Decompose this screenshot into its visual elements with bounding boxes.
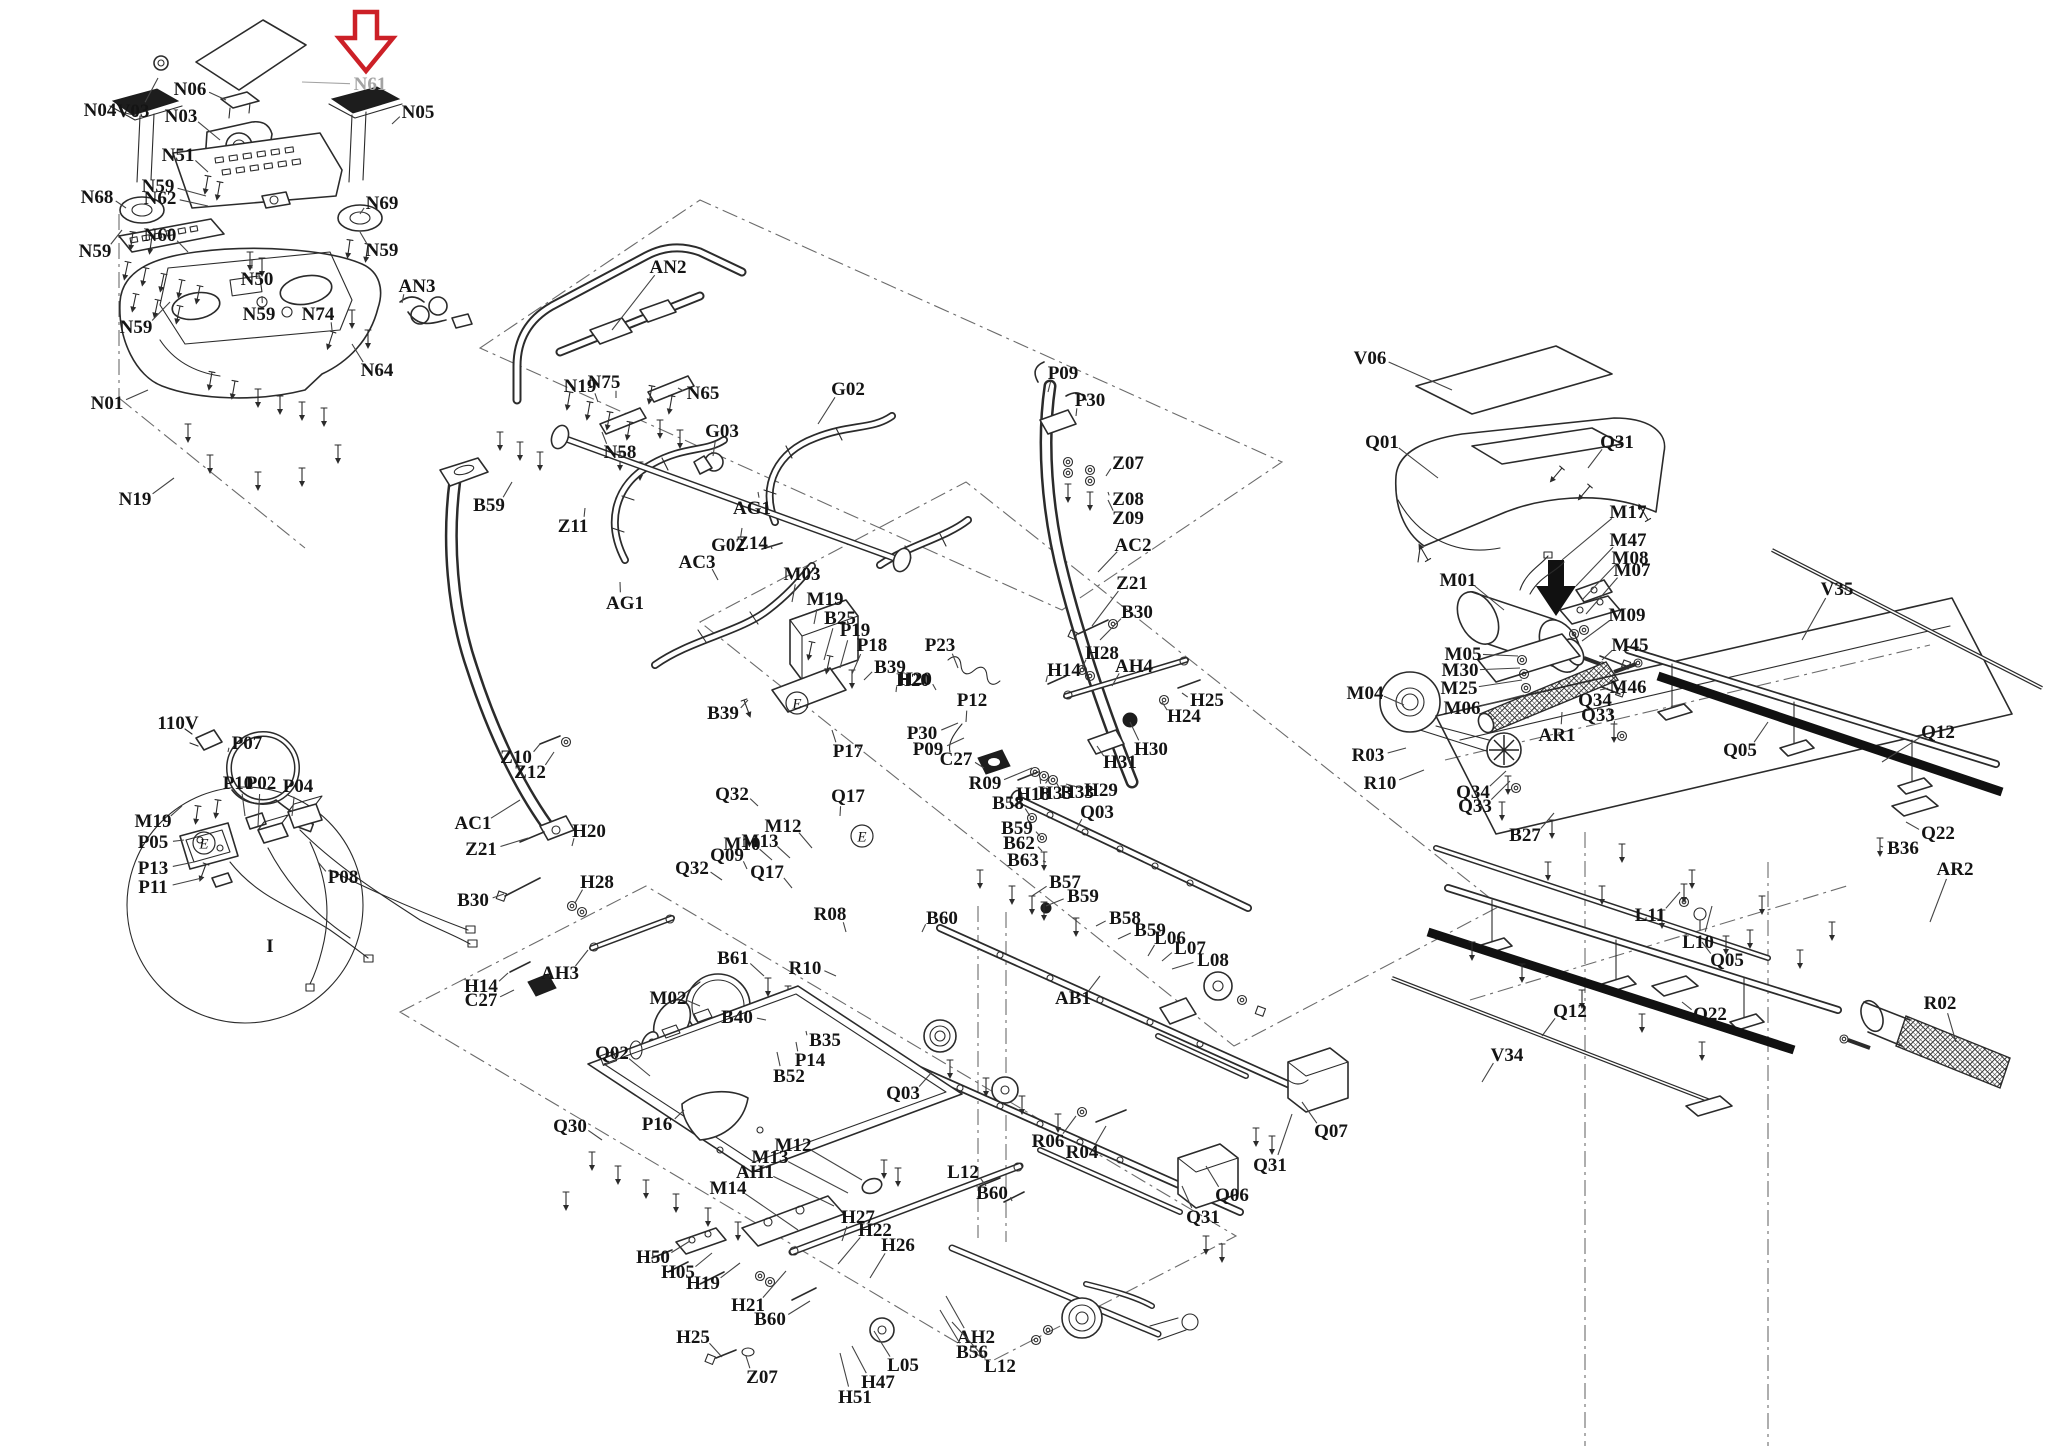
leader-line <box>1182 693 1188 697</box>
part-label-R10-78: R10 <box>789 958 822 979</box>
console-assembly-art <box>110 20 472 491</box>
part-label-N19-21: N19 <box>119 489 152 510</box>
part-label-G03-39: G03 <box>705 421 739 442</box>
leader-line <box>750 964 764 976</box>
part-label-M01-161: M01 <box>1440 570 1477 591</box>
part-label-Q31-153: Q31 <box>1186 1207 1220 1228</box>
part-label-M06-167: M06 <box>1444 698 1481 719</box>
leader-line <box>302 82 350 84</box>
part-label-Q22-181: Q22 <box>1921 823 1955 844</box>
leader-line <box>824 971 836 976</box>
part-label-N50-10: N50 <box>241 269 274 290</box>
part-label-B30-63: B30 <box>457 890 489 911</box>
part-label-N65-36: N65 <box>687 383 720 404</box>
leader-line <box>1562 518 1612 560</box>
leader-line <box>1802 598 1826 640</box>
console-wire-pigtail-part <box>400 297 472 328</box>
part-label-M19-48: M19 <box>807 589 844 610</box>
part-label-R04-149: R04 <box>1066 1142 1099 1163</box>
part-label-L08-124: L08 <box>1197 950 1229 971</box>
leader-line <box>946 1296 964 1328</box>
part-label-V03-1: V03 <box>117 101 150 122</box>
part-label-AC2-94: AC2 <box>1115 535 1152 556</box>
part-label-H28-97: H28 <box>1085 643 1119 664</box>
leader-line <box>750 799 758 806</box>
part-label-B60-147: B60 <box>976 1183 1008 1204</box>
part-label-L12-145: L12 <box>984 1356 1016 1377</box>
leader-line <box>941 723 958 730</box>
circled-mark-E-0: E <box>198 837 208 853</box>
part-label-M09-162: M09 <box>1609 605 1646 626</box>
leader-line <box>721 1263 740 1278</box>
part-label-C27-67: C27 <box>465 990 498 1011</box>
part-label-AH4-99: AH4 <box>1115 656 1154 677</box>
leader-line <box>1906 822 1919 829</box>
part-label-P02-25: P02 <box>246 773 277 794</box>
part-label-P13-29: P13 <box>138 858 169 879</box>
part-label-Q32-70: Q32 <box>675 858 709 879</box>
leader-line <box>777 846 790 858</box>
leader-line <box>743 861 747 869</box>
part-label-AH3-65: AH3 <box>541 963 579 984</box>
part-label-AC1-60: AC1 <box>455 813 492 834</box>
leader-line <box>852 1346 866 1373</box>
part-label-N58-37: N58 <box>604 442 637 463</box>
part-label-H25-138: H25 <box>676 1327 710 1348</box>
part-label-110V-22: 110V <box>157 713 198 734</box>
leader-line <box>933 684 936 690</box>
part-label-Z11-42: Z11 <box>558 516 589 537</box>
part-label-AC3-45: AC3 <box>679 552 716 573</box>
part-label-H20-105: H20 <box>898 669 932 690</box>
part-label-N59-19: N59 <box>120 317 153 338</box>
part-label-V06-154: V06 <box>1354 348 1387 369</box>
part-label-M46-168: M46 <box>1610 677 1647 698</box>
leader-line <box>499 973 508 981</box>
small-cover-part <box>221 92 259 108</box>
leader-line <box>1930 879 1946 922</box>
part-label-B61-79: B61 <box>717 948 749 969</box>
part-label-Q02-85: Q02 <box>595 1043 629 1064</box>
part-label-B59-41: B59 <box>473 495 505 516</box>
leader-line <box>788 1301 810 1314</box>
leader-line <box>392 117 400 124</box>
part-label-M25-166: M25 <box>1441 678 1478 699</box>
leader-line <box>171 806 182 816</box>
part-label-P30-90: P30 <box>1075 390 1106 411</box>
part-label-Q22-187: Q22 <box>1693 1004 1727 1025</box>
part-label-L12-146: L12 <box>947 1162 979 1183</box>
exploded-parts-diagram-page: N04V03N06N03N51N59N62N68N59N60N50N69N59N… <box>0 0 2048 1448</box>
part-label-N04-0: N04 <box>84 100 117 121</box>
part-label-Q05-180: Q05 <box>1723 740 1757 761</box>
diagram-canvas: N04V03N06N03N51N59N62N68N59N60N50N69N59N… <box>0 0 2048 1448</box>
part-label-P08-31: P08 <box>328 867 359 888</box>
part-label-B63-116: B63 <box>1007 850 1039 871</box>
part-label-Z09-93: Z09 <box>1112 508 1144 529</box>
part-label-B40-81: B40 <box>721 1007 753 1028</box>
part-label-Q33-172: Q33 <box>1581 705 1615 726</box>
main-frame-art <box>440 248 1348 1365</box>
part-label-B60-77: B60 <box>926 908 958 929</box>
part-label-L11-184: L11 <box>1635 905 1666 926</box>
part-label-H19-135: H19 <box>686 1273 720 1294</box>
part-label-N05-13: N05 <box>402 102 435 123</box>
leader-line <box>126 390 148 400</box>
part-label-B35-82: B35 <box>809 1030 841 1051</box>
part-label-N51-4: N51 <box>162 145 195 166</box>
part-label-AN3-15: AN3 <box>399 276 436 297</box>
part-label-V35-178: V35 <box>1821 579 1854 600</box>
leader-line <box>947 738 964 746</box>
part-label-M12-74: M12 <box>765 816 802 837</box>
part-label-H30-102: H30 <box>1134 739 1168 760</box>
speaker-grommet-part <box>154 56 168 70</box>
part-label-M03-47: M03 <box>784 564 821 585</box>
leader-line <box>1278 1114 1292 1155</box>
part-label-AR1-170: AR1 <box>1539 725 1576 746</box>
part-label-Z21-95: Z21 <box>1116 573 1148 594</box>
part-label-Q03-88: Q03 <box>886 1083 920 1104</box>
part-label-Q05-186: Q05 <box>1710 950 1744 971</box>
part-label-Z08-92: Z08 <box>1112 489 1144 510</box>
leader-line <box>1388 748 1406 753</box>
leader-line <box>864 672 872 680</box>
part-label-N03-3: N03 <box>165 106 198 127</box>
part-label-AR2-183: AR2 <box>1937 859 1974 880</box>
part-label-Q31-156: Q31 <box>1600 432 1634 453</box>
part-label-R02-188: R02 <box>1924 993 1957 1014</box>
power-wiring-art <box>127 729 477 1023</box>
part-label-N68-7: N68 <box>81 187 114 208</box>
part-label-R08-76: R08 <box>814 904 847 925</box>
part-label-Z07-91: Z07 <box>1112 453 1144 474</box>
part-label-H51-142: H51 <box>838 1387 872 1408</box>
part-label-H26-132: H26 <box>881 1235 915 1256</box>
part-label-P05-28: P05 <box>138 832 169 853</box>
leader-line <box>1490 771 1506 786</box>
leader-line <box>922 924 926 932</box>
part-label-N62-6: N62 <box>144 188 177 209</box>
leader-line <box>588 1130 602 1140</box>
leader-line <box>811 1150 862 1180</box>
leader-line <box>1063 1116 1076 1134</box>
leader-line <box>1162 953 1172 961</box>
overlay-sheet-part <box>196 20 306 90</box>
part-label-H31-103: H31 <box>1103 752 1137 773</box>
circled-mark-E-1: E <box>791 697 801 713</box>
leader-line <box>1666 892 1680 908</box>
part-label-H24-101: H24 <box>1167 706 1201 727</box>
roller-wheel-part <box>1204 972 1232 1000</box>
part-label-Q06-152: Q06 <box>1215 1185 1249 1206</box>
part-label-Q03-117: Q03 <box>1080 802 1114 823</box>
part-label-M02-80: M02 <box>650 988 687 1009</box>
leader-line <box>209 92 226 100</box>
leader-line <box>870 1253 885 1278</box>
part-label-H28-64: H28 <box>580 872 614 893</box>
leader-line <box>1025 809 1030 816</box>
leader-line <box>491 800 520 818</box>
part-label-Q01-155: Q01 <box>1365 432 1399 453</box>
leader-line <box>1108 492 1109 495</box>
part-label-Z07-139: Z07 <box>746 1367 778 1388</box>
part-label-P04-26: P04 <box>283 776 314 797</box>
part-label-B30-96: B30 <box>1121 602 1153 623</box>
leader-line <box>1004 768 1032 780</box>
power-plug-part <box>196 730 222 750</box>
part-label-C27-107: C27 <box>940 749 973 770</box>
part-label-R06-148: R06 <box>1032 1131 1065 1152</box>
leader-line <box>1172 962 1193 969</box>
part-label-N64-17: N64 <box>361 360 394 381</box>
part-label-P23-104: P23 <box>925 635 956 656</box>
leader-line <box>1705 906 1712 932</box>
part-label-N59-8: N59 <box>79 241 112 262</box>
part-label-Z14-44: Z14 <box>736 533 768 554</box>
part-label-N01-20: N01 <box>91 393 124 414</box>
part-label-M04-169: M04 <box>1347 683 1384 704</box>
leader-line <box>1576 547 1613 586</box>
part-label-I-32: I <box>266 936 273 957</box>
part-label-P09-89: P09 <box>1048 363 1079 384</box>
part-label-P16-86: P16 <box>642 1114 673 1135</box>
part-label-M19-27: M19 <box>135 811 172 832</box>
leader-line <box>534 744 540 752</box>
circled-mark-E-2: E <box>856 830 866 846</box>
part-label-M14-129: M14 <box>710 1178 747 1199</box>
leader-line <box>1096 921 1106 926</box>
part-label-B56-144: B56 <box>956 1342 988 1363</box>
part-label-Q17-75: Q17 <box>750 862 784 883</box>
leader-line <box>153 478 174 494</box>
part-label-R10-174: R10 <box>1364 773 1397 794</box>
part-label-B36-182: B36 <box>1887 838 1919 859</box>
part-label-P11-30: P11 <box>138 877 168 898</box>
part-label-N59-18: N59 <box>243 304 276 325</box>
part-label-P18-51: P18 <box>857 635 888 656</box>
part-label-B39-54: B39 <box>707 703 739 724</box>
part-label-M45-163: M45 <box>1612 635 1649 656</box>
part-label-Z12-56: Z12 <box>514 762 546 783</box>
leader-line <box>1682 1002 1692 1010</box>
leader-line <box>1561 712 1562 724</box>
part-label-B27-177: B27 <box>1509 825 1541 846</box>
leader-line <box>784 878 792 888</box>
part-label-AN2-33: AN2 <box>650 257 687 278</box>
part-label-P17-57: P17 <box>833 741 864 762</box>
leader-line <box>966 711 967 722</box>
leader-line <box>545 752 554 765</box>
part-label-N06-2: N06 <box>174 79 207 100</box>
guide-wheel-part <box>924 1020 956 1052</box>
leader-line <box>500 838 528 846</box>
part-label-Q12-179: Q12 <box>1921 722 1955 743</box>
part-label-Z21-61: Z21 <box>465 839 497 860</box>
wire-harness-part <box>230 830 477 991</box>
part-label-L10-185: L10 <box>1682 932 1714 953</box>
leader-line <box>1106 469 1111 476</box>
part-label-Q07-150: Q07 <box>1314 1121 1348 1142</box>
part-label-AB1-125: AB1 <box>1055 988 1091 1009</box>
part-label-AG1-40: AG1 <box>733 498 771 519</box>
part-label-P07-23: P07 <box>232 733 263 754</box>
sticker-sheet-part <box>1416 346 1612 414</box>
leader-line <box>493 894 504 898</box>
part-label-N69-11: N69 <box>366 193 399 214</box>
part-label-H14-98: H14 <box>1047 660 1081 681</box>
part-label-B60-137: B60 <box>754 1309 786 1330</box>
part-label-N59-12: N59 <box>366 240 399 261</box>
leader-line <box>1046 899 1064 906</box>
leader-line <box>173 878 202 885</box>
part-label-N61-14: N61 <box>354 74 387 95</box>
leader-line <box>840 1353 849 1387</box>
part-label-R09-108: R09 <box>969 773 1002 794</box>
part-label-R03-173: R03 <box>1352 745 1385 766</box>
part-label-G02-38: G02 <box>831 379 865 400</box>
leader-line <box>758 492 759 498</box>
part-label-B58-113: B58 <box>992 793 1024 814</box>
part-label-P12-106: P12 <box>957 690 988 711</box>
leader-line <box>228 748 229 752</box>
leader-line <box>1043 861 1046 862</box>
part-label-N60-9: N60 <box>144 225 177 246</box>
part-label-B59-119: B59 <box>1067 886 1099 907</box>
leader-line <box>818 397 835 424</box>
part-label-V34-190: V34 <box>1491 1045 1524 1066</box>
part-label-Q30-87: Q30 <box>553 1116 587 1137</box>
part-label-Q17-69: Q17 <box>831 786 865 807</box>
part-label-H29-112: H29 <box>1084 780 1118 801</box>
leader-line <box>1399 770 1424 780</box>
leader-line <box>1118 933 1131 939</box>
leader-line <box>695 1253 712 1267</box>
leader-line <box>711 872 722 880</box>
part-label-N74-16: N74 <box>302 304 335 325</box>
leader-line <box>500 990 514 997</box>
part-label-Q33-176: Q33 <box>1458 796 1492 817</box>
part-label-AG1-46: AG1 <box>606 593 644 614</box>
highlight-arrow-group <box>339 12 393 71</box>
leader-line <box>838 1237 860 1264</box>
part-label-Q32-68: Q32 <box>715 784 749 805</box>
highlight-arrow <box>339 12 393 71</box>
leader-line <box>840 806 841 816</box>
part-label-Q12-189: Q12 <box>1553 1001 1587 1022</box>
part-label-M07-160: M07 <box>1614 560 1651 581</box>
part-label-N75-35: N75 <box>588 372 621 393</box>
part-label-H20-62: H20 <box>572 821 606 842</box>
part-label-B52-84: B52 <box>773 1066 805 1087</box>
part-label-M17-157: M17 <box>1610 502 1647 523</box>
part-label-Q31-151: Q31 <box>1253 1155 1287 1176</box>
